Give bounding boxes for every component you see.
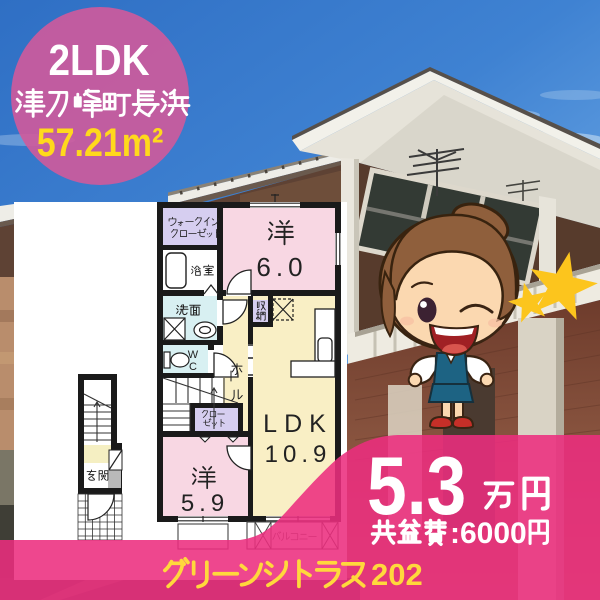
svg-text:2LDK: 2LDK — [48, 35, 149, 85]
svg-text:202: 202 — [371, 557, 423, 592]
svg-text::6000: :6000 — [450, 517, 527, 550]
svg-text:57.21m²: 57.21m² — [37, 119, 164, 164]
